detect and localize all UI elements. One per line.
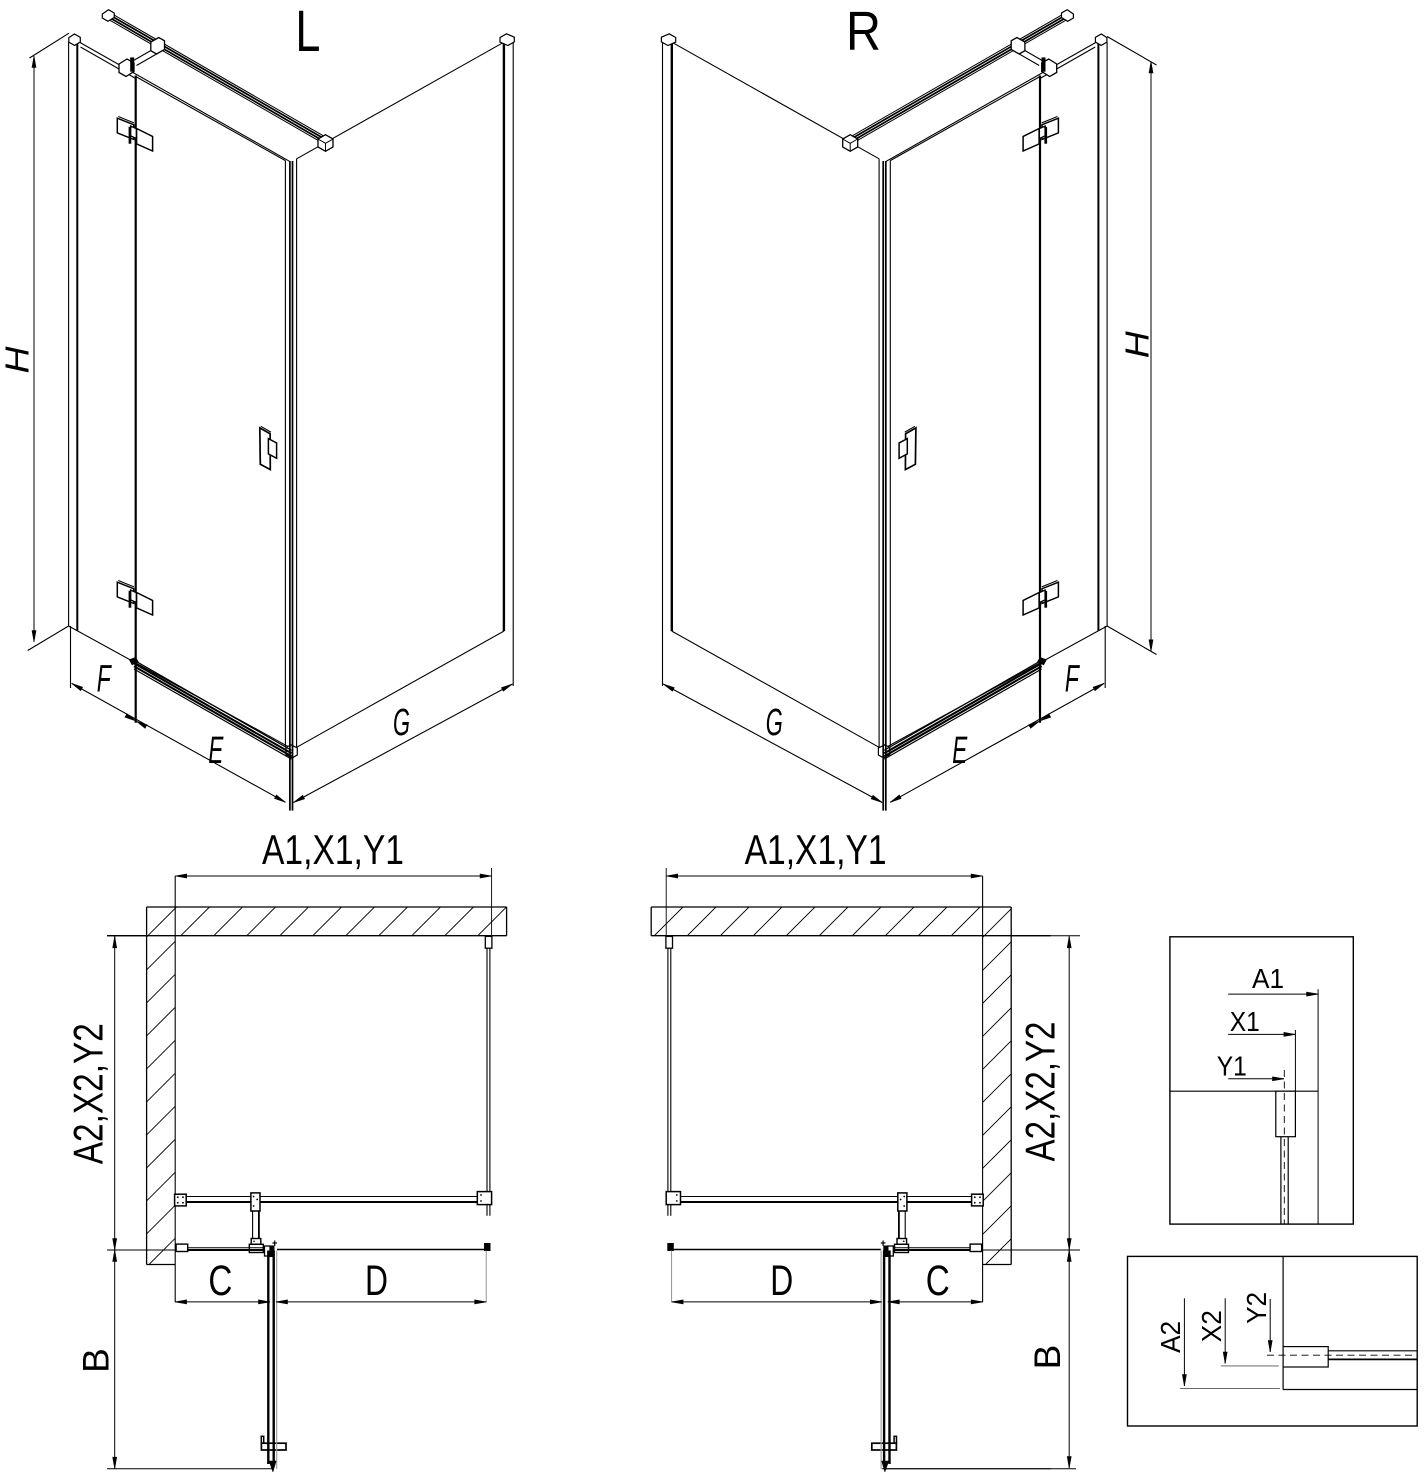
svg-text:E: E xyxy=(952,730,967,772)
svg-text:D: D xyxy=(365,1257,388,1305)
svg-text:A1: A1 xyxy=(1252,963,1284,994)
svg-text:H: H xyxy=(0,346,36,373)
svg-text:E: E xyxy=(208,730,223,772)
svg-text:D: D xyxy=(770,1257,793,1305)
svg-text:A2,X2,Y2: A2,X2,Y2 xyxy=(64,1023,111,1164)
svg-text:Y1: Y1 xyxy=(1217,1051,1247,1082)
svg-text:B: B xyxy=(1027,1345,1068,1370)
svg-text:C: C xyxy=(208,1257,232,1305)
svg-text:G: G xyxy=(393,702,410,744)
svg-text:F: F xyxy=(1065,659,1080,701)
svg-text:A2: A2 xyxy=(1155,1321,1186,1353)
svg-text:F: F xyxy=(97,659,112,701)
svg-text:C: C xyxy=(926,1257,950,1305)
svg-text:X1: X1 xyxy=(1230,1006,1260,1037)
svg-text:A2,X2,Y2: A2,X2,Y2 xyxy=(1017,1022,1064,1162)
svg-text:X2: X2 xyxy=(1196,1310,1227,1342)
svg-text:B: B xyxy=(75,1348,116,1373)
svg-text:A1,X1,Y1: A1,X1,Y1 xyxy=(262,826,404,873)
svg-text:R: R xyxy=(846,0,881,62)
svg-text:H: H xyxy=(1118,331,1155,358)
svg-text:L: L xyxy=(295,0,320,64)
svg-text:Y2: Y2 xyxy=(1241,1292,1272,1324)
svg-text:G: G xyxy=(766,702,783,744)
svg-text:A1,X1,Y1: A1,X1,Y1 xyxy=(745,826,887,873)
